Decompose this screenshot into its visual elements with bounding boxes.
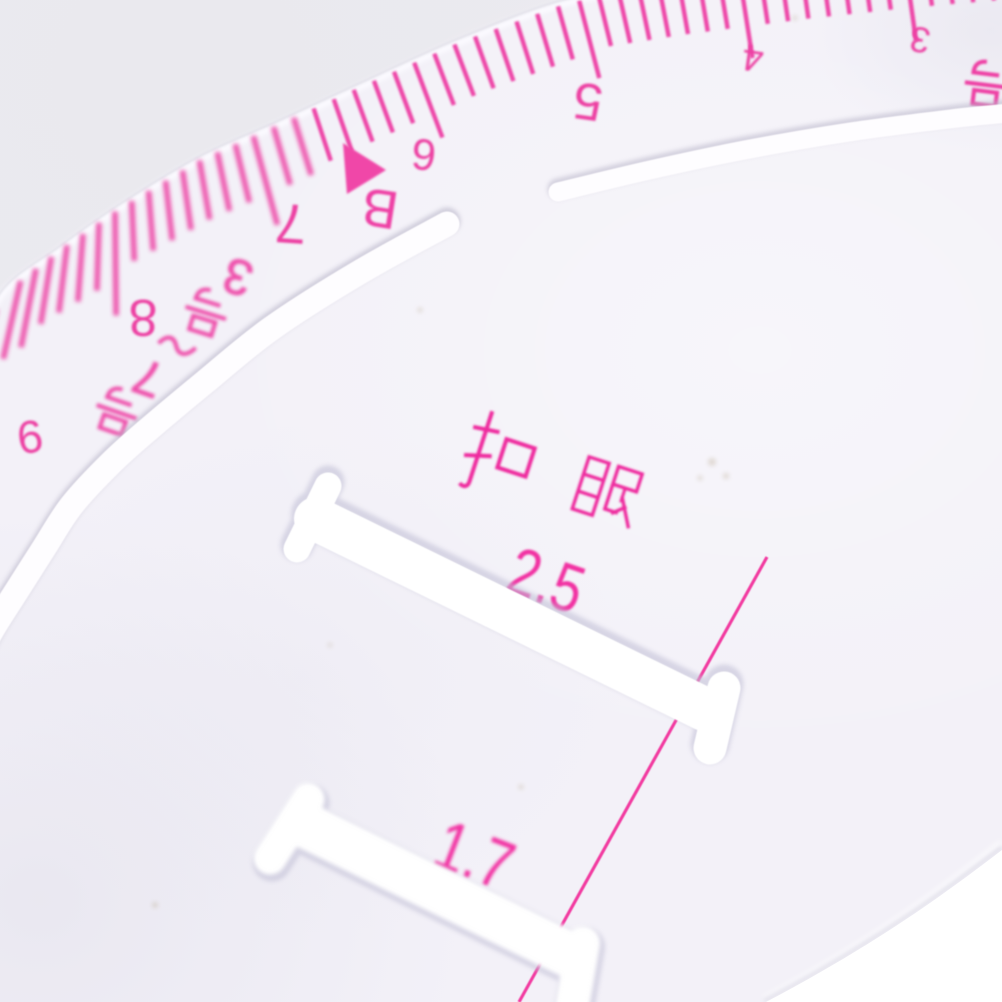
svg-text:8: 8 [129,288,158,346]
svg-text:7: 7 [273,191,308,256]
svg-text:6: 6 [409,128,438,179]
